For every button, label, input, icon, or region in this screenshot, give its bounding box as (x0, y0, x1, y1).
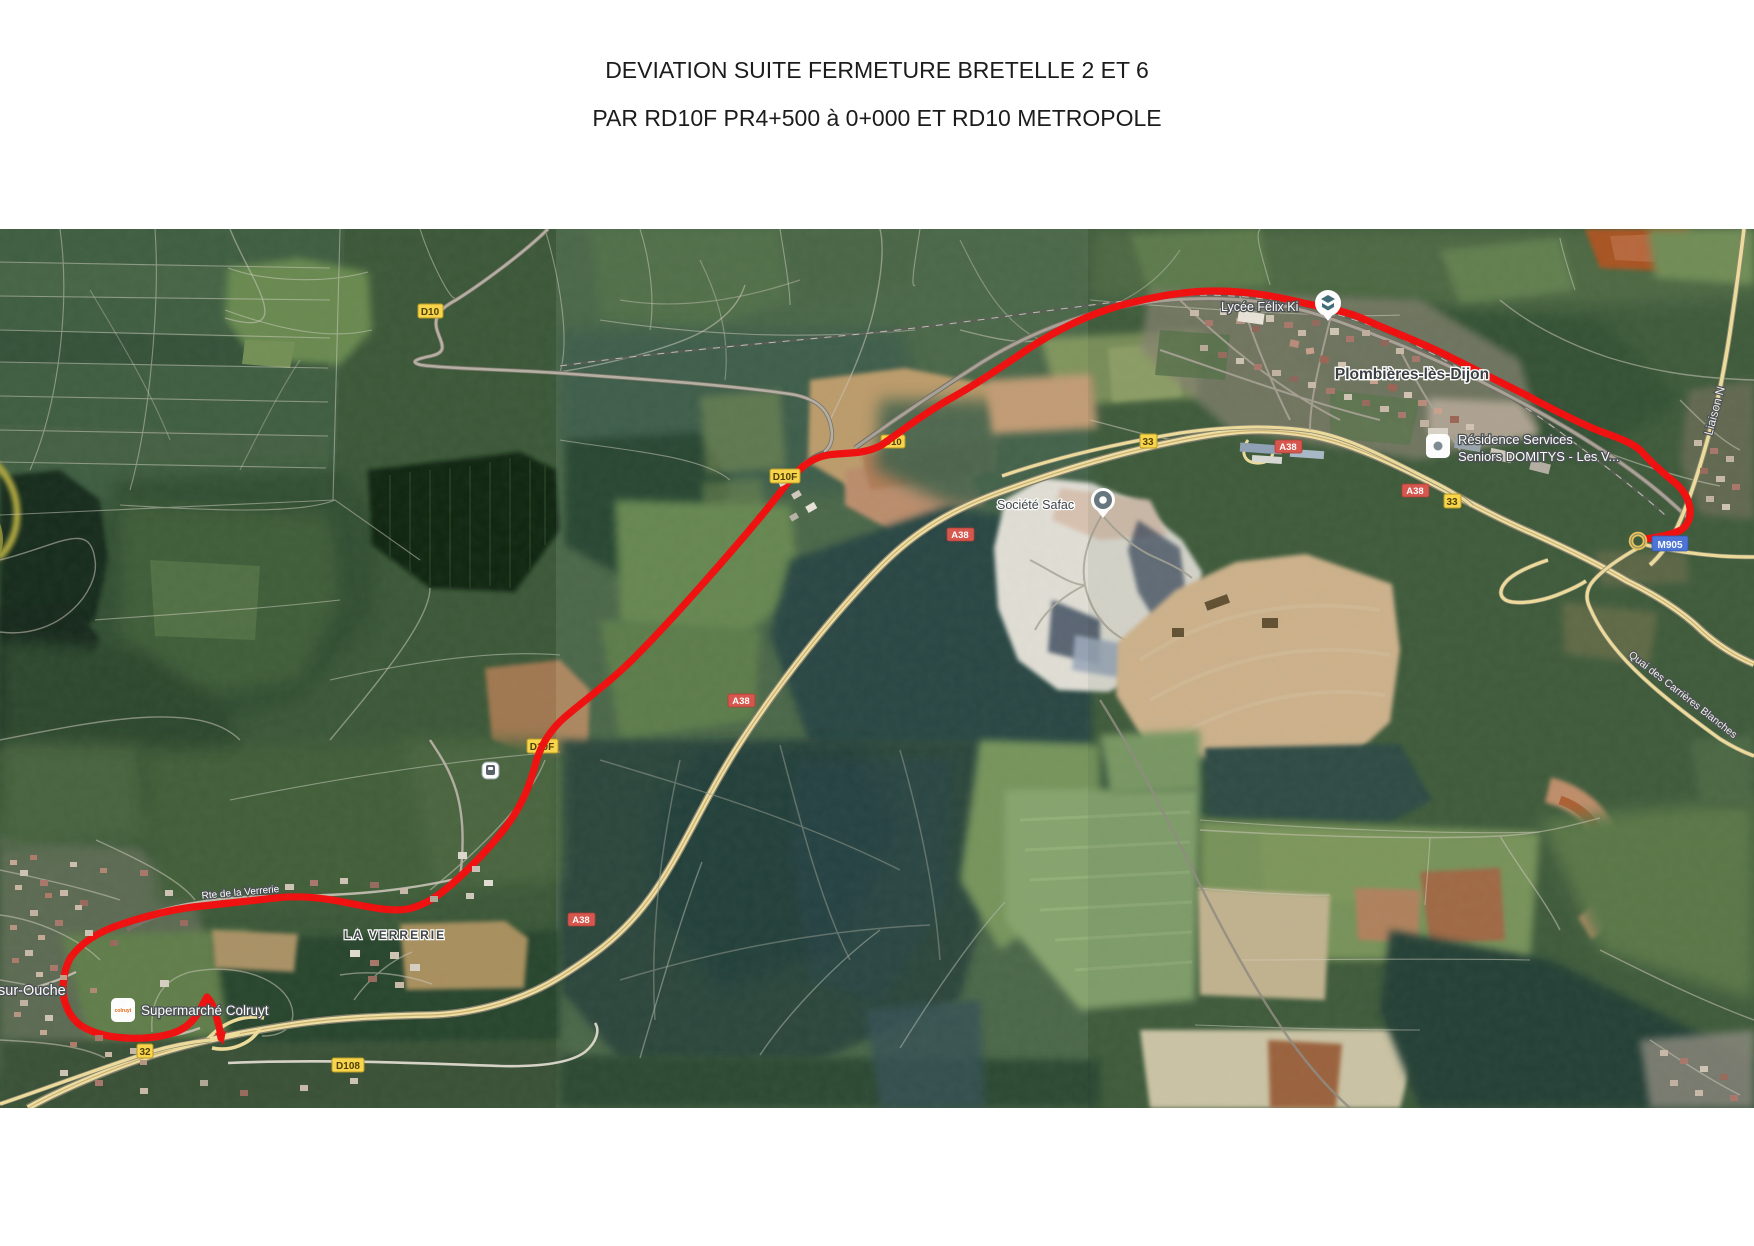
svg-text:PAR RD10F PR4+500 à 0+000 ET R: PAR RD10F PR4+500 à 0+000 ET RD10 METROP… (592, 105, 1161, 131)
svg-text:DEVIATION SUITE FERMETURE BRET: DEVIATION SUITE FERMETURE BRETELLE 2 ET … (605, 57, 1149, 83)
